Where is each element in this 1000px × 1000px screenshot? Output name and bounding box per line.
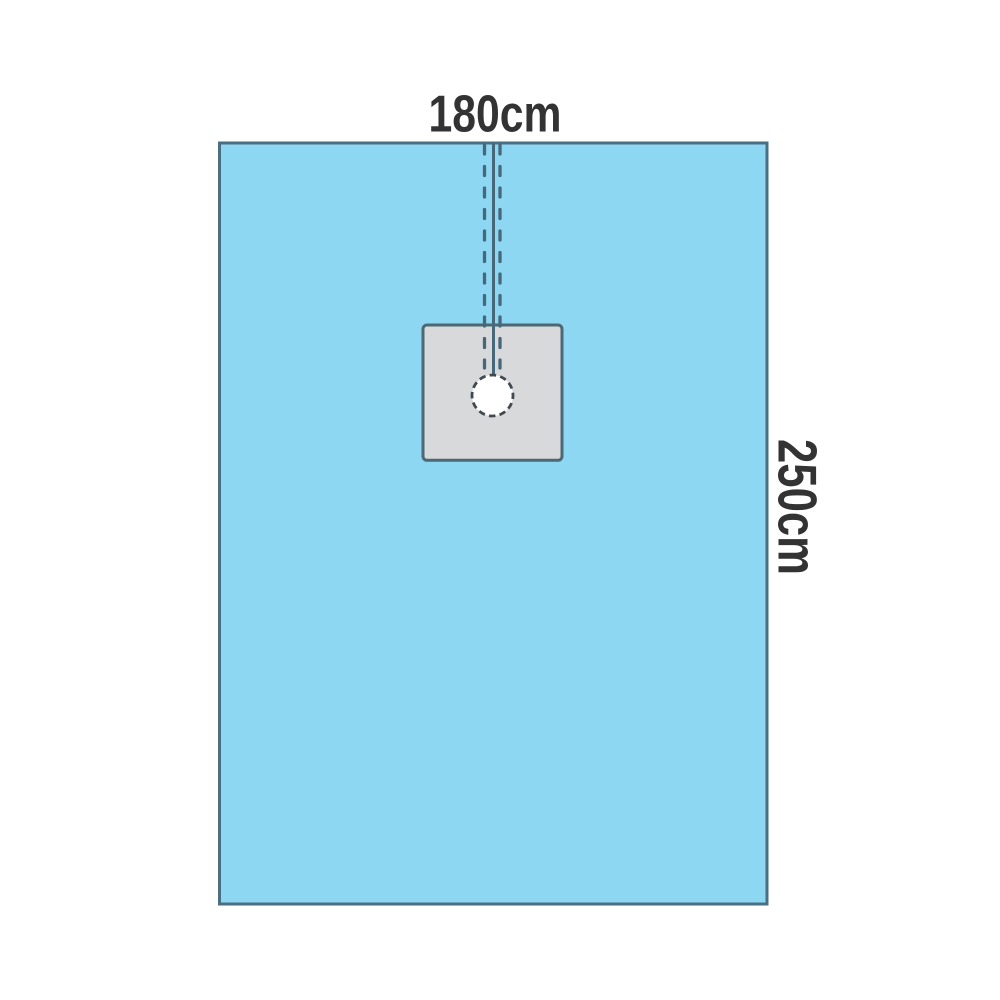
svg-text:180cm: 180cm (429, 86, 562, 144)
svg-text:250cm: 250cm (767, 439, 829, 575)
